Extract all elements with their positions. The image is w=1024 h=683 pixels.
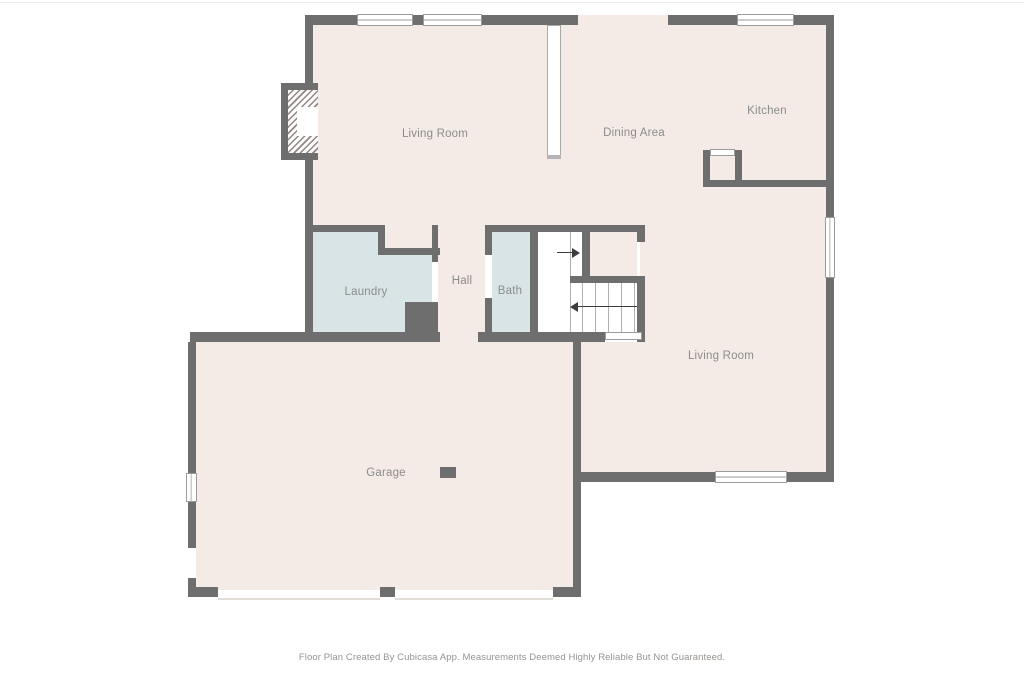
- room-label-hall: Hall: [452, 275, 473, 287]
- garage-west-wall-lower: [188, 502, 196, 548]
- stairs-mid-wall: [570, 276, 645, 283]
- page-top-border: [0, 2, 1024, 3]
- room-label-dining-area: Dining Area: [603, 127, 665, 139]
- stairs-landing-opening: [605, 332, 642, 340]
- room-label-bath: Bath: [498, 285, 522, 297]
- garage-south-corner-left: [188, 587, 218, 597]
- bath-door-opening: [485, 255, 492, 298]
- kitchen-south-wall: [703, 180, 834, 187]
- wall-left-lower: [305, 158, 313, 338]
- floor-fill-living-right-lower: [581, 342, 830, 477]
- living-dining-partition-cap: [547, 155, 561, 159]
- room-label-laundry: Laundry: [345, 286, 388, 298]
- garage-door-line-left: [218, 598, 380, 600]
- kitchen-closet-door: [710, 149, 735, 156]
- garage-north-wall-east: [478, 332, 605, 342]
- laundry-corner-wall-mass: [405, 302, 438, 332]
- window-kitchen-top: [737, 14, 794, 26]
- stairs-left-run: [538, 277, 570, 332]
- room-label-living-room-lower: Living Room: [688, 350, 754, 362]
- floor-fill-stair-alcove: [590, 232, 637, 278]
- room-label-garage: Garage: [366, 467, 406, 479]
- living-south-wall-west: [305, 225, 385, 232]
- wall-top-b: [482, 15, 578, 25]
- window-living-top-right: [423, 14, 482, 26]
- bath-fill: [492, 232, 530, 332]
- floor-fill-top-wall-opening: [578, 15, 668, 25]
- fireplace-firebox: [297, 107, 318, 136]
- room-label-kitchen: Kitchen: [747, 105, 787, 117]
- floor-plan: Living Room Dining Area Kitchen Laundry …: [0, 0, 1024, 683]
- garage-west-wall-upper: [188, 342, 196, 473]
- window-living-lower: [715, 471, 787, 483]
- laundry-notch-wall-horiz: [378, 248, 440, 255]
- window-garage-left: [186, 473, 197, 502]
- living-south-wall-east: [485, 225, 645, 232]
- stairs-divider-line-upper: [570, 232, 571, 277]
- living-lower-south-wall-east: [787, 472, 834, 482]
- bath-stairs-wall: [530, 225, 538, 342]
- living-dining-partition: [547, 25, 561, 158]
- garage-north-wall-west: [190, 332, 440, 342]
- window-living-top-left: [357, 14, 413, 26]
- living-lower-south-wall-west: [573, 472, 715, 482]
- stairs-down-arrow-stem: [577, 306, 640, 307]
- wall-left-upper: [305, 15, 313, 85]
- wall-right-lower: [826, 278, 834, 474]
- stairs-up-arrow-icon: [572, 248, 580, 258]
- garage-east-wall: [573, 342, 581, 597]
- bath-wall-left-upper: [485, 232, 492, 255]
- hall-doorway-stub: [432, 225, 438, 262]
- stairs-inner-wall: [582, 232, 590, 277]
- wall-top-window-divider: [413, 15, 423, 25]
- laundry-door-opening: [432, 262, 438, 302]
- footer-disclaimer: Floor Plan Created By Cubicasa App. Meas…: [0, 652, 1024, 663]
- wall-top-c: [668, 15, 737, 25]
- garage-support-post: [440, 467, 456, 478]
- room-label-living-room-main: Living Room: [402, 128, 468, 140]
- stairs-up-arrow-stem: [557, 252, 573, 253]
- stairs-down-arrow-icon: [570, 302, 578, 312]
- window-right-wall: [825, 217, 835, 278]
- floor-fill-garage: [196, 342, 573, 590]
- stairs-alcove-stub: [637, 232, 645, 242]
- garage-south-middle-stub: [380, 587, 395, 597]
- stairs-lower-run: [570, 283, 637, 332]
- garage-door-line-right: [395, 598, 553, 600]
